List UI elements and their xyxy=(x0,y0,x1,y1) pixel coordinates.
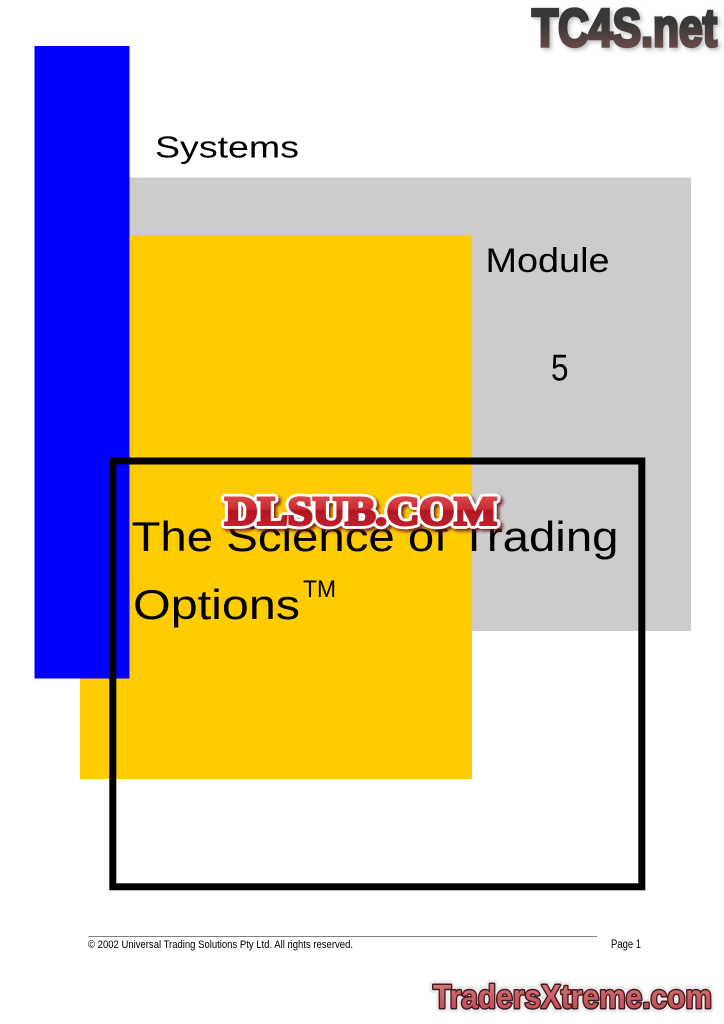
svg-text:Module: Module xyxy=(486,242,610,280)
svg-text:TC4S.net: TC4S.net xyxy=(532,0,717,58)
svg-text:Systems: Systems xyxy=(155,129,299,164)
svg-text:DLSUB.COM: DLSUB.COM xyxy=(225,489,497,534)
svg-text:5: 5 xyxy=(551,348,569,389)
svg-text:Options: Options xyxy=(133,581,300,628)
svg-text:Page 1: Page 1 xyxy=(611,939,641,951)
svg-text:TM: TM xyxy=(303,576,336,603)
svg-text:© 2002 Universal Trading Solut: © 2002 Universal Trading Solutions Pty L… xyxy=(88,939,353,951)
svg-text:TradersXtreme.com: TradersXtreme.com xyxy=(433,978,712,1015)
